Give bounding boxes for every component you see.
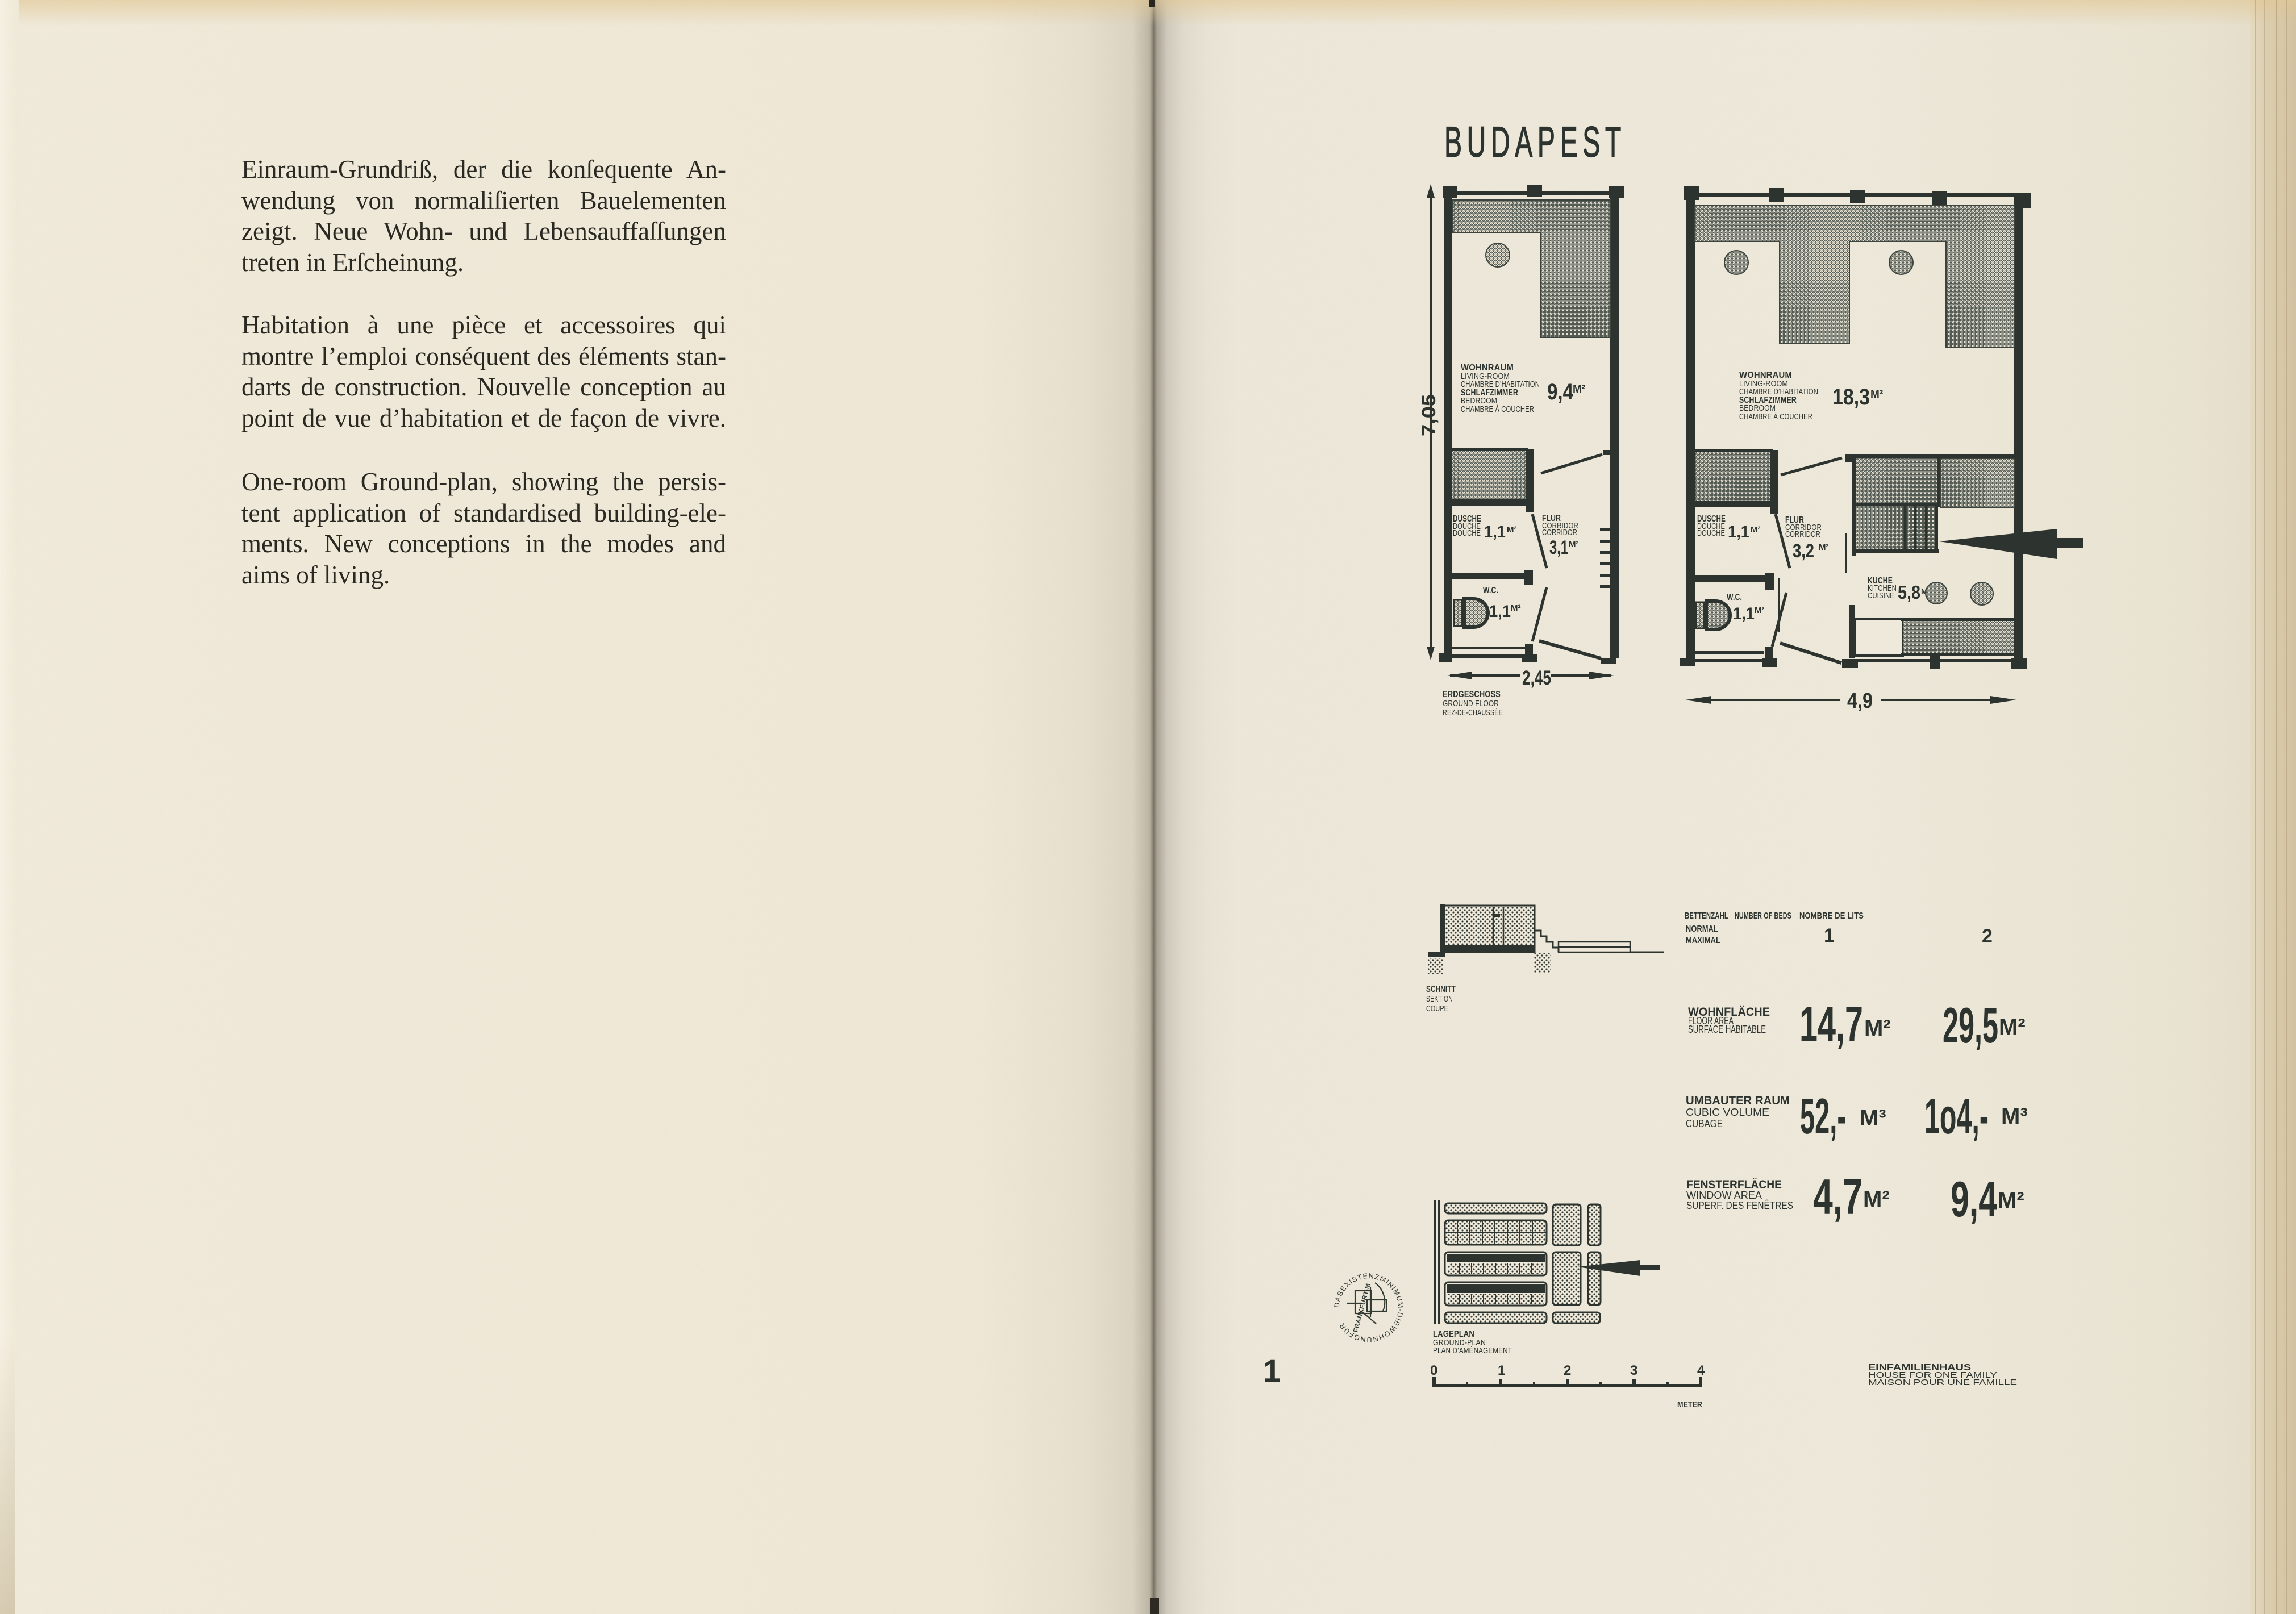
svg-text:M²: M² (1819, 543, 1829, 552)
svg-text:M²: M² (1863, 1187, 1890, 1212)
svg-text:CUBIC VOLUME: CUBIC VOLUME (1686, 1107, 1769, 1118)
svg-text:1,1: 1,1 (1728, 523, 1749, 541)
svg-text:M²: M² (1998, 1188, 2024, 1213)
svg-text:1,1: 1,1 (1733, 604, 1755, 623)
svg-text:1o4,-: 1o4,- (1924, 1088, 1989, 1144)
svg-text:4,9: 4,9 (1847, 689, 1873, 713)
svg-text:M²: M² (1511, 603, 1521, 613)
svg-text:NORMAL: NORMAL (1686, 924, 1718, 934)
svg-text:NOMBRE DE LITS: NOMBRE DE LITS (1799, 911, 1864, 921)
svg-text:2,45: 2,45 (1522, 667, 1551, 689)
svg-text:CORRIDOR: CORRIDOR (1785, 529, 1820, 539)
svg-text:CHAMBRE À COUCHER: CHAMBRE À COUCHER (1739, 412, 1812, 422)
svg-text:7,05: 7,05 (1418, 394, 1440, 436)
svg-text:M³: M³ (1860, 1106, 1886, 1131)
svg-text:BETTENZAHL: BETTENZAHL (1685, 911, 1728, 921)
svg-text:DOUCHE: DOUCHE (1453, 528, 1481, 538)
svg-text:1: 1 (1824, 925, 1835, 946)
svg-text:UMBAUTER RAUM: UMBAUTER RAUM (1686, 1094, 1790, 1107)
svg-text:CUISINE: CUISINE (1868, 591, 1894, 600)
svg-text:W.C.: W.C. (1727, 593, 1742, 602)
svg-text:9,4: 9,4 (1951, 1171, 1997, 1227)
svg-text:SCHNITT: SCHNITT (1426, 985, 1456, 994)
svg-text:9,4: 9,4 (1547, 379, 1574, 404)
svg-text:W.C.: W.C. (1483, 586, 1498, 595)
svg-text:3: 3 (1630, 1363, 1637, 1378)
svg-text:GROUND FLOOR: GROUND FLOOR (1443, 699, 1499, 708)
svg-text:3,1: 3,1 (1549, 537, 1568, 558)
svg-text:DOUCHE: DOUCHE (1697, 528, 1725, 538)
svg-text:1: 1 (1263, 1353, 1281, 1388)
svg-text:3,2: 3,2 (1793, 540, 1814, 562)
svg-text:ERDGESCHOSS: ERDGESCHOSS (1443, 690, 1501, 699)
svg-text:NUMBER OF BEDS: NUMBER OF BEDS (1735, 911, 1791, 921)
svg-text:REZ-DE-CHAUSSÉE: REZ-DE-CHAUSSÉE (1443, 708, 1503, 718)
svg-text:CHAMBRE À COUCHER: CHAMBRE À COUCHER (1461, 404, 1534, 414)
svg-text:18,3: 18,3 (1832, 385, 1870, 410)
svg-text:METER: METER (1677, 1400, 1702, 1409)
svg-text:M²: M² (1507, 525, 1517, 535)
svg-text:M²: M² (1573, 383, 1585, 395)
svg-text:SEKTION: SEKTION (1426, 994, 1453, 1004)
svg-text:1,1: 1,1 (1489, 602, 1511, 621)
svg-text:PLAN D’AMÉNAGEMENT: PLAN D’AMÉNAGEMENT (1433, 1346, 1512, 1356)
svg-text:5,8: 5,8 (1898, 582, 1920, 603)
svg-text:1: 1 (1498, 1363, 1505, 1378)
svg-text:BUDAPEST: BUDAPEST (1444, 118, 1626, 166)
svg-text:M²: M² (1755, 606, 1765, 615)
svg-text:CUBAGE: CUBAGE (1686, 1118, 1723, 1129)
svg-text:WINDOW AREA: WINDOW AREA (1686, 1190, 1762, 1201)
svg-text:4,7: 4,7 (1813, 1169, 1862, 1225)
svg-text:0: 0 (1430, 1363, 1437, 1378)
svg-text:29,5: 29,5 (1943, 997, 1998, 1053)
svg-text:M²: M² (1751, 525, 1761, 535)
svg-text:14,7: 14,7 (1799, 996, 1863, 1052)
svg-text:CORRIDOR: CORRIDOR (1542, 528, 1577, 537)
svg-text:52,-: 52,- (1800, 1088, 1846, 1144)
svg-text:2: 2 (1564, 1363, 1571, 1378)
svg-text:MAXIMAL: MAXIMAL (1686, 936, 1720, 945)
svg-text:SURFACE HABITABLE: SURFACE HABITABLE (1688, 1024, 1766, 1035)
svg-text:COUPE: COUPE (1426, 1004, 1448, 1014)
svg-text:M²: M² (1569, 540, 1579, 549)
svg-text:1,1: 1,1 (1484, 523, 1506, 541)
svg-text:M³: M³ (2001, 1104, 2028, 1129)
svg-text:M²: M² (1870, 389, 1883, 401)
svg-text:SUPERF. DES FENÊTRES: SUPERF. DES FENÊTRES (1686, 1200, 1793, 1211)
svg-text:4: 4 (1697, 1363, 1705, 1378)
svg-text:2: 2 (1982, 925, 1993, 947)
svg-text:MAISON POUR UNE FAMILLE: MAISON POUR UNE FAMILLE (1868, 1378, 2017, 1387)
svg-text:M²: M² (1999, 1015, 2026, 1040)
svg-text:M²: M² (1864, 1016, 1891, 1041)
